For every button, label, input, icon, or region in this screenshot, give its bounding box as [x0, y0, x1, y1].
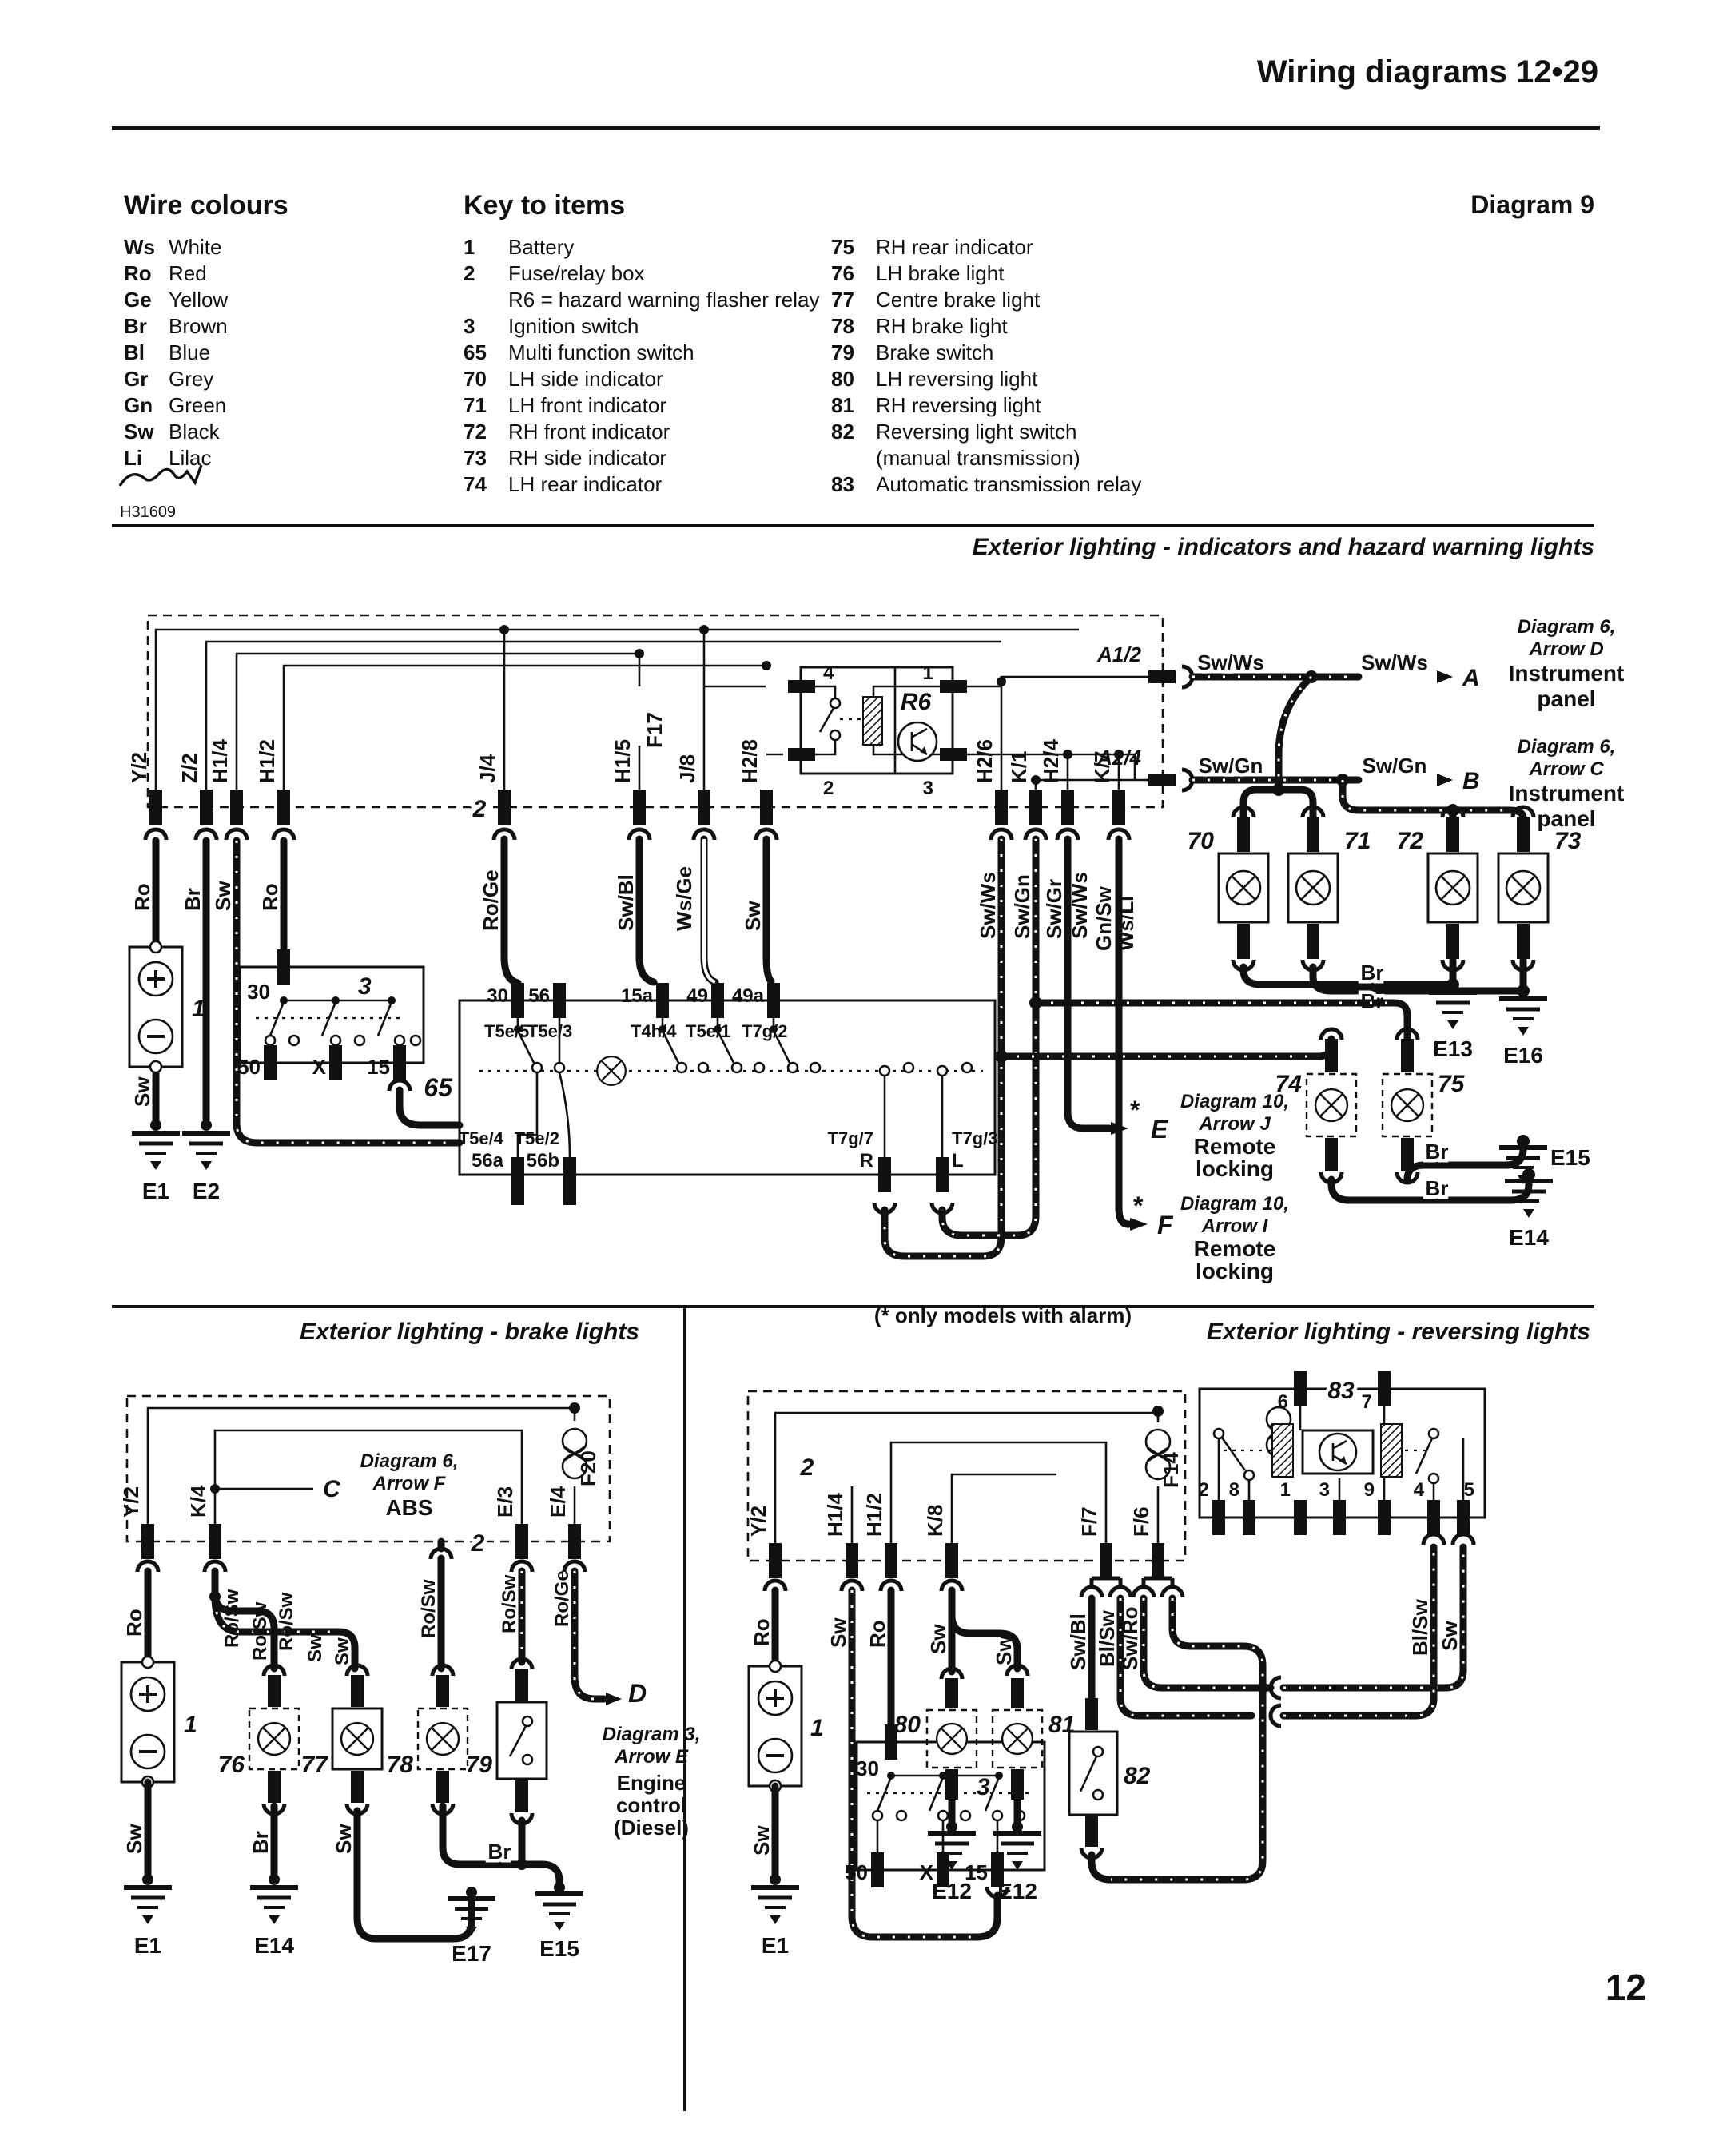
key-num: 72	[464, 420, 508, 444]
key-num: 78	[831, 314, 876, 339]
asterisk: *	[1130, 1096, 1140, 1124]
legend-name: Red	[169, 261, 207, 286]
component-number: 65	[424, 1073, 453, 1102]
connector-label: H1/5	[611, 739, 635, 783]
key-label: Fuse/relay box	[508, 261, 645, 286]
wire-colours-list: WsWhite RoRed GeYellow BrBrown BlBlue Gr…	[124, 235, 228, 472]
wire-label: Sw/Gn	[1010, 874, 1034, 939]
ignition-output-wire	[400, 1090, 460, 1125]
terminal-label: X	[920, 1860, 934, 1884]
key-row: 65Multi function switch	[464, 340, 819, 367]
wire-label: Bl/Sw	[1095, 1609, 1119, 1667]
lamp-76: 76	[218, 1665, 299, 1814]
wire-label: Bl/Sw	[1408, 1598, 1432, 1656]
pin-label: 4	[823, 662, 834, 684]
terminal-label: 56b	[527, 1150, 559, 1171]
battery-1	[129, 941, 182, 1072]
terminal-label: T5e/4	[459, 1128, 504, 1148]
arrow-d-icon	[606, 1693, 622, 1705]
connector-label: Y/2	[746, 1506, 770, 1537]
key-row: (manual transmission)	[831, 446, 1141, 472]
wire-label: Br	[488, 1840, 511, 1864]
legend-row: GnGreen	[124, 393, 228, 420]
key-row: 75RH rear indicator	[831, 235, 1141, 261]
fuse-relay-box-2	[148, 615, 1163, 807]
arrow-target: D	[628, 1679, 647, 1708]
key-row: 2Fuse/relay box	[464, 261, 819, 288]
component-number: 76	[218, 1752, 245, 1778]
fuse-f17	[1267, 1407, 1291, 1457]
relay-return-wires: Sw/Ro Bl/Sw Bl/Sw Sw	[1092, 1547, 1463, 1880]
component-number: 1	[184, 1712, 197, 1738]
reversing-lights-diagram: 2 F14 Y/2 H1/4 H1/2 K/8 F/7 F/6 Ro 1 Sw …	[746, 1371, 1485, 1958]
harness-connectors: Y/2 Z/2 H1/4 H1/2 J/4 H1/5 J/8 H2/8 H2/6…	[127, 739, 1129, 840]
legend-name: Brown	[169, 314, 228, 339]
key-num: 71	[464, 393, 508, 418]
reversing-switch-82: Sw/Bl 82	[1066, 1598, 1151, 1858]
terminal-label: L	[952, 1150, 964, 1171]
connector-label: H1/2	[862, 1493, 886, 1537]
arrow-b-icon	[1437, 774, 1453, 786]
pin-label: 1	[923, 662, 933, 684]
legend-name: Grey	[169, 367, 213, 392]
key-row: R6 = hazard warning flasher relay	[464, 288, 819, 314]
legend-code: Gn	[124, 393, 169, 418]
terminal-label: T7g/7	[828, 1128, 873, 1148]
fuse-label: F14	[1159, 1452, 1183, 1488]
component-number: 71	[1344, 828, 1371, 854]
key-num: 80	[831, 367, 876, 392]
legend-name: Black	[169, 420, 220, 444]
wire-label: Sw	[304, 1634, 326, 1662]
wire-label: Sw	[332, 1637, 353, 1665]
wire-label: Ws/Li	[1114, 896, 1138, 951]
legend-name: White	[169, 235, 221, 260]
section-title-indicators: Exterior lighting - indicators and hazar…	[795, 534, 1594, 561]
connector-label: K/7	[1090, 751, 1114, 783]
key-label: Centre brake light	[876, 288, 1040, 312]
ground-e14	[1505, 1181, 1553, 1218]
key-label: R6 = hazard warning flasher relay	[508, 288, 819, 312]
terminal-label: R	[860, 1150, 873, 1171]
key-row: 80LH reversing light	[831, 367, 1141, 393]
terminal-label: T7g/3	[952, 1128, 997, 1148]
key-label: RH brake light	[876, 314, 1008, 339]
harness-connectors: Y/2 K/4 E/3 E/4	[119, 1485, 585, 1572]
terminal-label: 49	[686, 985, 708, 1007]
terminal-label: T5e/3	[527, 1021, 572, 1041]
wire-label: Sw/Bl	[1066, 1613, 1090, 1670]
svg-text:Arrow C: Arrow C	[1528, 758, 1604, 780]
terminal-label: 56	[528, 985, 550, 1007]
asterisk: *	[1133, 1191, 1144, 1220]
connector-label: A1/2	[1096, 642, 1141, 666]
key-row: 71LH front indicator	[464, 393, 819, 420]
legend-row: LiLilac	[124, 446, 228, 472]
component-number: 75	[1438, 1071, 1466, 1097]
terminal-label: 30	[856, 1756, 879, 1780]
connector-label: F/7	[1077, 1506, 1101, 1537]
wire-label: Sw/Ws	[1068, 872, 1092, 939]
component-number: 82	[1124, 1763, 1151, 1789]
ground-label: E1	[142, 1179, 169, 1203]
pin-label: 8	[1229, 1479, 1239, 1501]
legend-row: GrGrey	[124, 367, 228, 393]
ground-label: E15	[1550, 1145, 1590, 1170]
legend-rule	[112, 524, 1594, 527]
component-number: 3	[977, 1774, 990, 1800]
legend-code: Bl	[124, 340, 169, 365]
ignition-switch-3: 30 3 50 X 15	[237, 949, 424, 1080]
arrow-target: A	[1462, 665, 1480, 691]
lamp-75: 75	[1383, 1029, 1466, 1183]
terminal-label: 30	[487, 985, 508, 1007]
key-label: LH side indicator	[508, 367, 663, 392]
key-num: 73	[464, 446, 508, 471]
relay-name: R6	[901, 689, 932, 715]
drawing-ref: H31609	[120, 503, 176, 522]
svg-text:Arrow F: Arrow F	[372, 1473, 447, 1494]
ground-e1	[132, 1133, 180, 1170]
fusebox-internal-wiring	[148, 1408, 575, 1524]
svg-text:Arrow J: Arrow J	[1198, 1113, 1271, 1135]
wire-label: Sw/Bl	[614, 874, 638, 931]
manual-page: { "header": {"title": "Wiring diagrams 1…	[0, 0, 1711, 2156]
ground-e2	[182, 1133, 230, 1170]
component-number: 2	[472, 796, 487, 822]
wire-label: Sw	[332, 1824, 356, 1854]
key-num: 77	[831, 288, 876, 312]
terminal-label: 15	[367, 1055, 390, 1079]
key-col1: 1Battery 2Fuse/relay box R6 = hazard war…	[464, 235, 819, 499]
arrow-e-icon	[1111, 1122, 1128, 1135]
key-label: LH brake light	[876, 261, 1004, 286]
fuse-f14	[1146, 1430, 1170, 1479]
pin-label: 1	[1280, 1479, 1291, 1501]
key-row: 70LH side indicator	[464, 367, 819, 393]
legend-name: Yellow	[169, 288, 228, 312]
instrument-panel-note-c: Diagram 6, Arrow C Instrument panel	[1509, 736, 1625, 831]
ground-label: E17	[452, 1941, 491, 1966]
ignition-switch-3: 30 3 50 X 15	[845, 1724, 1045, 1887]
terminal-label: 15	[965, 1860, 988, 1884]
key-row: 82Reversing light switch	[831, 420, 1141, 446]
component-number: 72	[1397, 828, 1424, 854]
page-number: 12	[1518, 1966, 1646, 2009]
legend-code: Gr	[124, 367, 169, 392]
connector-label: H2/4	[1039, 739, 1063, 783]
wire-label: Sw/Gn	[1199, 754, 1263, 778]
legend-code: Ge	[124, 288, 169, 312]
key-label: LH front indicator	[508, 393, 666, 418]
ground-e17	[448, 1899, 495, 1935]
key-num: 82	[831, 420, 876, 444]
wire-label: Sw	[826, 1617, 850, 1648]
pin-label: 6	[1278, 1391, 1288, 1413]
terminal-label: 15a	[621, 985, 654, 1007]
wire-label: Ro/Sw	[418, 1579, 440, 1638]
lamp-73: 73	[1498, 807, 1582, 970]
key-row: 3Ignition switch	[464, 314, 819, 340]
relay-coil	[1381, 1424, 1402, 1477]
wire-label: Ro	[258, 883, 282, 911]
wire-label: Ro/Sw	[249, 1601, 271, 1661]
ground-e15	[535, 1894, 583, 1931]
legend-code: Br	[124, 314, 169, 339]
svg-text:Engine: Engine	[617, 1771, 686, 1795]
wire-label: Sw/Gr	[1042, 879, 1066, 939]
component-number: 1	[810, 1715, 824, 1741]
wire-label: Sw	[130, 1076, 154, 1107]
ground-label: E16	[1503, 1043, 1543, 1068]
wire-label: Br	[1426, 1176, 1449, 1200]
legend-row: BrBrown	[124, 314, 228, 340]
battery-1	[749, 1661, 802, 1792]
key-num: 1	[464, 235, 508, 260]
wire-label: Br	[1426, 1140, 1449, 1164]
key-label: (manual transmission)	[876, 446, 1080, 471]
switch-illumination-lamp	[597, 1056, 626, 1085]
key-num: 3	[464, 314, 508, 339]
f7-f6-splits	[1081, 1568, 1183, 1597]
panel-divider	[683, 1308, 686, 2111]
wire-label: Ro	[865, 1620, 889, 1648]
svg-text:Diagram 6,: Diagram 6,	[360, 1450, 459, 1472]
wire-label: Ro/Sw	[276, 1592, 297, 1651]
terminal-label: T5e/2	[515, 1128, 559, 1148]
wire-label: Sw	[122, 1824, 146, 1854]
brake-lights-diagram: 2 F20 C Diagram 6, Arrow F ABS Y/2 K/4 E…	[119, 1396, 700, 1966]
ground-label: E13	[1433, 1036, 1473, 1061]
connector-label: H1/2	[255, 739, 279, 783]
switch-feed-wires	[504, 839, 771, 983]
ground-e1	[124, 1887, 172, 1924]
wire-label: Sw/Ws	[976, 872, 1000, 939]
relay-coil	[863, 697, 882, 745]
fusebox-internal-wiring	[775, 1413, 1158, 1543]
legend-name: Lilac	[169, 446, 211, 471]
component-number: 78	[387, 1752, 414, 1778]
component-number: 80	[894, 1712, 921, 1738]
key-title: Key to items	[464, 190, 625, 221]
component-number: 3	[358, 973, 372, 1000]
section-title-reversing: Exterior lighting - reversing lights	[951, 1319, 1590, 1346]
ground-e15	[1499, 1148, 1547, 1184]
pin-label: 3	[1319, 1479, 1330, 1501]
wire-label: Ro/Sw	[499, 1574, 520, 1633]
key-num: 75	[831, 235, 876, 260]
key-row: 78RH brake light	[831, 314, 1141, 340]
wire-label: Sw	[926, 1624, 950, 1654]
component-number: 83	[1327, 1378, 1355, 1404]
wire-label: Sw	[992, 1635, 1016, 1665]
svg-text:control: control	[616, 1793, 686, 1817]
lamp-74: 74	[1275, 1029, 1356, 1183]
arrow-f-icon	[1130, 1218, 1148, 1231]
lamp-78: 78	[387, 1665, 468, 1814]
abs-note: Diagram 6, Arrow F ABS	[360, 1450, 459, 1520]
arrow-target: C	[323, 1476, 341, 1502]
terminal-label: T4h/4	[631, 1021, 677, 1041]
key-row: 83Automatic transmission relay	[831, 472, 1141, 499]
connector-label: F/6	[1129, 1506, 1153, 1537]
svg-text:Instrument: Instrument	[1509, 661, 1625, 686]
svg-text:locking: locking	[1196, 1156, 1274, 1181]
wire-label: Br	[1361, 961, 1384, 985]
ground-label: E12	[997, 1879, 1037, 1903]
wire-label: Sw/Gn	[1363, 754, 1427, 778]
svg-text:Arrow E: Arrow E	[614, 1746, 689, 1768]
wire-label: Sw	[741, 901, 765, 931]
connector-label: J/4	[475, 754, 499, 783]
component-number: 81	[1048, 1712, 1075, 1738]
component-number: 2	[800, 1454, 814, 1481]
connector-label: Y/2	[119, 1486, 143, 1518]
arrow-target: F	[1157, 1211, 1174, 1239]
fusebox-internal-wiring	[156, 630, 1148, 790]
ground-label: E14	[1509, 1225, 1549, 1250]
brake-switch-79: 79	[466, 1659, 547, 1824]
legend-row: WsWhite	[124, 235, 228, 261]
svg-text:Remote: Remote	[1194, 1236, 1276, 1261]
brake-feed-wires	[209, 1541, 622, 1705]
key-label: Multi function switch	[508, 340, 694, 365]
terminal-label: T7g/2	[742, 1021, 787, 1041]
ground-e16	[1499, 999, 1547, 1036]
key-label: Brake switch	[876, 340, 993, 365]
multi-function-switch-65: 65 30 56 15a 49 49a T5e/5 T5e/3 T4h/4 T5…	[424, 983, 997, 1205]
svg-text:Remote: Remote	[1194, 1134, 1276, 1159]
terminal-label: T5e/1	[686, 1021, 730, 1041]
legend-row: RoRed	[124, 261, 228, 288]
component-number: 79	[466, 1752, 493, 1778]
wire-label: Ro/Ge	[479, 869, 503, 931]
key-row: 79Brake switch	[831, 340, 1141, 367]
terminal-label: 50	[237, 1055, 261, 1079]
key-label: RH front indicator	[508, 420, 670, 444]
key-row: 74LH rear indicator	[464, 472, 819, 499]
lamp-77: 77	[301, 1665, 382, 1814]
wire-label: Sw/Ws	[1361, 650, 1428, 674]
power-and-ground-wires	[156, 841, 460, 1143]
connector-label: Y/2	[127, 752, 151, 783]
legend-code: Li	[124, 446, 169, 471]
fuse-f20	[563, 1429, 587, 1478]
connector-label: H1/4	[823, 1493, 847, 1537]
relay-coil	[1272, 1424, 1293, 1477]
ground-label: E1	[762, 1933, 789, 1958]
ground-label: E12	[932, 1879, 972, 1903]
connector-cups	[145, 829, 1129, 840]
relay-r6: 4 1 2 3 R6	[788, 662, 967, 799]
lamp-71: 71	[1288, 807, 1371, 970]
wire-label: Ro	[130, 883, 154, 911]
key-label: RH side indicator	[508, 446, 666, 471]
battery-1	[121, 1657, 174, 1788]
wire-label: Sw/Ws	[1197, 650, 1264, 674]
connector-row	[149, 790, 1125, 825]
connector-label: H2/8	[738, 739, 762, 783]
key-label: Ignition switch	[508, 314, 639, 339]
terminal-label: 56a	[472, 1150, 504, 1171]
wire-label: Sw	[1438, 1621, 1462, 1651]
ground-e12	[993, 1833, 1041, 1870]
sw-loop-wire	[852, 1590, 997, 1937]
lamp-72: 72	[1397, 807, 1478, 970]
key-num: 79	[831, 340, 876, 365]
component-number: 1	[192, 996, 205, 1022]
key-num: 65	[464, 340, 508, 365]
wire-label: Gn/Sw	[1092, 885, 1116, 951]
key-label: LH rear indicator	[508, 472, 662, 497]
fuse-label: F17	[643, 712, 666, 748]
key-row: 76LH brake light	[831, 261, 1141, 288]
legend-row: SwBlack	[124, 420, 228, 446]
wire-label: Ws/Ge	[672, 866, 696, 931]
svg-text:Arrow D: Arrow D	[1528, 638, 1603, 660]
wire-colours-title: Wire colours	[124, 190, 288, 221]
key-num: 81	[831, 393, 876, 418]
legend-name: Green	[169, 393, 226, 418]
mid-rule	[112, 1305, 1594, 1308]
wire-label: Br	[1361, 989, 1384, 1013]
instrument-panel-note-d: Diagram 6, Arrow D Instrument panel	[1509, 616, 1625, 711]
ground-label: E15	[539, 1936, 579, 1961]
header-rule	[112, 126, 1600, 130]
ground-e12	[928, 1833, 976, 1870]
key-num: 74	[464, 472, 508, 497]
pin-label: 4	[1414, 1479, 1425, 1501]
wire-label: Ro/Sw	[221, 1589, 243, 1648]
key-row: 81RH reversing light	[831, 393, 1141, 420]
legend-code: Ws	[124, 235, 169, 260]
ground-e1	[751, 1887, 799, 1924]
svg-text:Diagram 6,: Diagram 6,	[1518, 736, 1616, 758]
transistor-symbol	[1319, 1434, 1356, 1470]
wire-label: Sw	[750, 1825, 774, 1856]
terminal-label: 30	[247, 980, 270, 1004]
key-row: 72RH front indicator	[464, 420, 819, 446]
wire-label: Br	[181, 888, 205, 911]
svg-text:Diagram 10,: Diagram 10,	[1180, 1193, 1289, 1215]
fuse-relay-box-2	[748, 1391, 1185, 1561]
svg-text:Arrow I: Arrow I	[1201, 1215, 1269, 1237]
svg-text:(Diesel): (Diesel)	[614, 1816, 689, 1840]
front-lamp-feeds	[1243, 677, 1523, 818]
arrow-target: E	[1151, 1115, 1169, 1144]
wire-label: Sw/Ro	[1118, 1607, 1142, 1670]
component-number: 70	[1188, 828, 1215, 854]
key-row: 1Battery	[464, 235, 819, 261]
key-num: 2	[464, 261, 508, 286]
key-num: 70	[464, 367, 508, 392]
pin-label: 3	[923, 778, 933, 799]
terminal-label: 49a	[732, 985, 765, 1007]
connector-label: K/8	[923, 1505, 947, 1537]
connector-label: E/4	[546, 1486, 570, 1518]
component-number: 2	[471, 1530, 485, 1557]
legend-code: Sw	[124, 420, 169, 444]
transmission-relay-83: 83 6 7 2 8 1 3 9 4 5	[1199, 1371, 1485, 1545]
connector-label: K/1	[1007, 751, 1031, 783]
page-title: Wiring diagrams 12•29	[1039, 54, 1598, 90]
key-label: Battery	[508, 235, 574, 260]
terminal-label: 50	[845, 1860, 868, 1884]
connector-label: J/8	[675, 754, 699, 783]
wire-label: Ro	[122, 1609, 146, 1637]
connector-label: K/4	[186, 1485, 210, 1518]
front-lamp-grounds: Br Br E13 E16	[1243, 961, 1547, 1068]
